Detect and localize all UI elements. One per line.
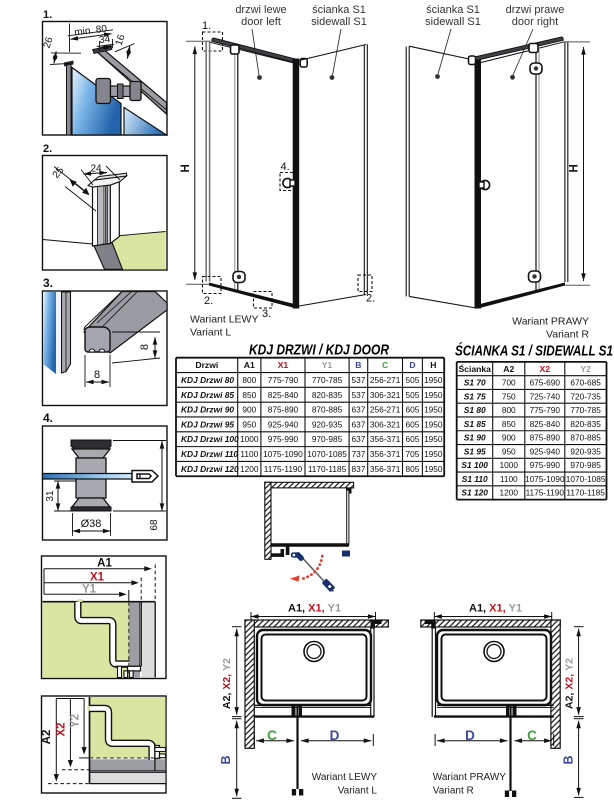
svg-text:925-940: 925-940 xyxy=(530,446,561,456)
svg-text:S1 95: S1 95 xyxy=(464,446,486,456)
svg-text:850: 850 xyxy=(242,390,256,400)
svg-text:34: 34 xyxy=(99,34,112,46)
svg-text:Variant L: Variant L xyxy=(190,327,231,339)
svg-text:605: 605 xyxy=(406,405,420,415)
svg-text:725-740: 725-740 xyxy=(530,391,561,401)
svg-text:1950: 1950 xyxy=(424,390,443,400)
svg-text:S1 80: S1 80 xyxy=(464,405,486,415)
svg-text:637: 637 xyxy=(351,419,365,429)
svg-text:S1 85: S1 85 xyxy=(464,419,486,429)
svg-text:A2: A2 xyxy=(503,364,514,374)
svg-text:825-840: 825-840 xyxy=(530,419,561,429)
svg-text:B: B xyxy=(219,755,233,764)
svg-text:A2: A2 xyxy=(41,730,53,745)
svg-text:1100: 1100 xyxy=(500,474,518,484)
svg-text:805: 805 xyxy=(406,464,420,474)
svg-text:H: H xyxy=(180,164,192,172)
svg-text:X1: X1 xyxy=(278,360,289,370)
svg-text:KDJ DRZWI / KDJ DOOR: KDJ DRZWI / KDJ DOOR xyxy=(249,343,389,359)
svg-text:H: H xyxy=(430,360,436,370)
svg-text:1070-1085: 1070-1085 xyxy=(566,474,606,484)
svg-text:1950: 1950 xyxy=(424,375,443,385)
svg-text:770-785: 770-785 xyxy=(312,375,343,385)
svg-text:720-735: 720-735 xyxy=(570,391,601,401)
svg-text:770-785: 770-785 xyxy=(570,405,601,415)
svg-text:KDJ Drzwi 85: KDJ Drzwi 85 xyxy=(181,390,234,400)
svg-text:1070-1085: 1070-1085 xyxy=(307,449,347,459)
svg-text:Variant L: Variant L xyxy=(338,786,378,797)
svg-text:drzwi lewe: drzwi lewe xyxy=(235,4,286,16)
svg-text:KDJ Drzwi 90: KDJ Drzwi 90 xyxy=(181,405,234,415)
svg-text:705: 705 xyxy=(406,449,420,459)
svg-text:2.: 2. xyxy=(366,293,375,305)
svg-text:68: 68 xyxy=(149,519,160,531)
svg-text:1000: 1000 xyxy=(500,460,519,470)
svg-text:900: 900 xyxy=(242,405,256,415)
svg-text:sidewall S1: sidewall S1 xyxy=(425,16,481,28)
svg-text:S1 120: S1 120 xyxy=(461,488,488,498)
svg-text:750: 750 xyxy=(502,391,516,401)
svg-text:900: 900 xyxy=(502,433,516,443)
svg-text:Variant R: Variant R xyxy=(546,329,589,341)
svg-text:637: 637 xyxy=(351,405,365,415)
svg-text:A2,X2,Y2: A2,X2,Y2 xyxy=(564,658,576,709)
svg-text:KDJ Drzwi 80: KDJ Drzwi 80 xyxy=(181,375,234,385)
svg-text:975-990: 975-990 xyxy=(268,434,299,444)
svg-text:S1 100: S1 100 xyxy=(461,460,488,470)
svg-text:1075-1090: 1075-1090 xyxy=(263,449,303,459)
svg-text:975-990: 975-990 xyxy=(530,460,561,470)
svg-text:775-790: 775-790 xyxy=(530,405,561,415)
svg-text:1175-1190: 1175-1190 xyxy=(264,464,303,474)
svg-text:870-885: 870-885 xyxy=(570,433,601,443)
svg-text:S1 110: S1 110 xyxy=(462,474,488,484)
svg-text:1950: 1950 xyxy=(424,449,443,459)
svg-text:Ścianka: Ścianka xyxy=(458,363,491,374)
svg-text:256-271: 256-271 xyxy=(370,375,401,385)
svg-text:B: B xyxy=(562,755,576,764)
svg-text:675-690: 675-690 xyxy=(530,378,561,388)
svg-text:Y2: Y2 xyxy=(580,364,591,374)
svg-text:A1: A1 xyxy=(244,360,255,370)
svg-text:Ø38: Ø38 xyxy=(81,518,102,530)
svg-text:1200: 1200 xyxy=(240,464,259,474)
svg-text:820-835: 820-835 xyxy=(312,390,343,400)
svg-text:Wariant LEWY: Wariant LEWY xyxy=(312,772,378,783)
svg-text:ŚCIANKA S1 / SIDEWALL S1: ŚCIANKA S1 / SIDEWALL S1 xyxy=(455,342,613,360)
svg-text:850: 850 xyxy=(502,419,516,429)
svg-text:356-371: 356-371 xyxy=(370,434,401,444)
svg-text:925-940: 925-940 xyxy=(268,419,299,429)
svg-text:C: C xyxy=(382,360,388,370)
svg-text:KDJ Drzwi 95: KDJ Drzwi 95 xyxy=(181,419,234,429)
svg-text:775-790: 775-790 xyxy=(268,375,299,385)
svg-text:Wariant PRAWY: Wariant PRAWY xyxy=(433,772,506,783)
svg-text:670-685: 670-685 xyxy=(570,378,601,388)
svg-text:1100: 1100 xyxy=(240,449,258,459)
svg-text:S1 70: S1 70 xyxy=(464,378,486,388)
svg-text:8: 8 xyxy=(139,344,151,350)
svg-text:Y2: Y2 xyxy=(70,714,82,728)
svg-text:2.: 2. xyxy=(43,143,52,155)
svg-text:A1: A1 xyxy=(97,558,112,570)
svg-text:505: 505 xyxy=(406,375,420,385)
svg-text:605: 605 xyxy=(406,419,420,429)
svg-text:1000: 1000 xyxy=(240,434,259,444)
svg-text:1950: 1950 xyxy=(424,434,443,444)
svg-text:537: 537 xyxy=(351,375,365,385)
svg-text:1950: 1950 xyxy=(424,405,443,415)
svg-text:sidewall S1: sidewall S1 xyxy=(311,16,367,28)
svg-text:H: H xyxy=(569,164,581,172)
svg-text:X2: X2 xyxy=(540,364,551,374)
svg-text:356-371: 356-371 xyxy=(370,449,401,459)
svg-text:door left: door left xyxy=(241,16,281,28)
svg-text:356-371: 356-371 xyxy=(370,464,401,474)
svg-text:Variant R: Variant R xyxy=(433,786,474,797)
svg-text:875-890: 875-890 xyxy=(268,405,299,415)
svg-text:31: 31 xyxy=(45,490,56,502)
svg-text:8: 8 xyxy=(94,369,100,381)
svg-text:ścianka S1: ścianka S1 xyxy=(426,4,480,16)
svg-text:X1: X1 xyxy=(90,572,105,584)
svg-text:837: 837 xyxy=(351,464,365,474)
svg-text:KDJ Drzwi 120: KDJ Drzwi 120 xyxy=(181,464,239,474)
svg-text:drzwi prawe: drzwi prawe xyxy=(506,4,565,16)
svg-text:S1 90: S1 90 xyxy=(464,433,486,443)
svg-text:4.: 4. xyxy=(281,161,290,173)
svg-text:875-890: 875-890 xyxy=(530,433,561,443)
svg-text:1170-1185: 1170-1185 xyxy=(308,464,347,474)
svg-text:970-985: 970-985 xyxy=(570,460,601,470)
svg-text:A1,X1,Y1: A1,X1,Y1 xyxy=(288,603,341,615)
svg-text:B: B xyxy=(355,360,361,370)
svg-text:Wariant LEWY: Wariant LEWY xyxy=(190,314,258,326)
svg-text:1200: 1200 xyxy=(500,488,519,498)
svg-text:X2: X2 xyxy=(56,722,68,736)
svg-text:950: 950 xyxy=(502,446,516,456)
svg-text:505: 505 xyxy=(406,390,420,400)
svg-text:605: 605 xyxy=(406,434,420,444)
svg-text:2.: 2. xyxy=(204,295,213,307)
svg-text:D: D xyxy=(409,360,415,370)
svg-text:A1,X1,Y1: A1,X1,Y1 xyxy=(469,603,522,615)
svg-text:737: 737 xyxy=(351,449,365,459)
svg-text:920-935: 920-935 xyxy=(312,419,343,429)
svg-text:256-271: 256-271 xyxy=(370,405,401,415)
svg-text:920-935: 920-935 xyxy=(570,446,601,456)
svg-text:door right: door right xyxy=(512,16,558,28)
svg-text:4.: 4. xyxy=(43,411,53,425)
svg-text:Y1: Y1 xyxy=(322,360,333,370)
svg-text:S1 75: S1 75 xyxy=(464,391,486,401)
svg-text:ścianka S1: ścianka S1 xyxy=(312,4,366,16)
svg-text:1175-1190: 1175-1190 xyxy=(526,488,565,498)
svg-text:637: 637 xyxy=(351,434,365,444)
svg-text:1950: 1950 xyxy=(424,464,443,474)
svg-text:700: 700 xyxy=(502,378,516,388)
svg-text:3.: 3. xyxy=(262,308,271,320)
svg-text:1950: 1950 xyxy=(424,419,443,429)
svg-text:800: 800 xyxy=(242,375,256,385)
svg-text:1075-1090: 1075-1090 xyxy=(525,474,565,484)
svg-text:Drzwi: Drzwi xyxy=(195,360,218,370)
svg-text:825-840: 825-840 xyxy=(268,390,299,400)
svg-text:306-321: 306-321 xyxy=(370,419,401,429)
svg-text:1170-1185: 1170-1185 xyxy=(566,488,605,498)
svg-text:820-835: 820-835 xyxy=(570,419,601,429)
svg-text:950: 950 xyxy=(242,419,256,429)
svg-text:800: 800 xyxy=(502,405,516,415)
svg-text:KDJ Drzwi 110: KDJ Drzwi 110 xyxy=(181,449,238,459)
svg-text:537: 537 xyxy=(351,390,365,400)
svg-text:306-321: 306-321 xyxy=(370,390,401,400)
svg-text:KDJ Drzwi 100: KDJ Drzwi 100 xyxy=(181,434,239,444)
svg-text:A2,X2,Y2: A2,X2,Y2 xyxy=(221,658,233,709)
svg-text:1.: 1. xyxy=(202,20,211,32)
svg-text:1.: 1. xyxy=(43,9,52,21)
svg-text:970-985: 970-985 xyxy=(312,434,343,444)
svg-text:870-885: 870-885 xyxy=(312,405,343,415)
svg-text:Wariant PRAWY: Wariant PRAWY xyxy=(512,316,589,328)
svg-text:3.: 3. xyxy=(43,276,53,290)
svg-text:Y1: Y1 xyxy=(82,583,97,595)
